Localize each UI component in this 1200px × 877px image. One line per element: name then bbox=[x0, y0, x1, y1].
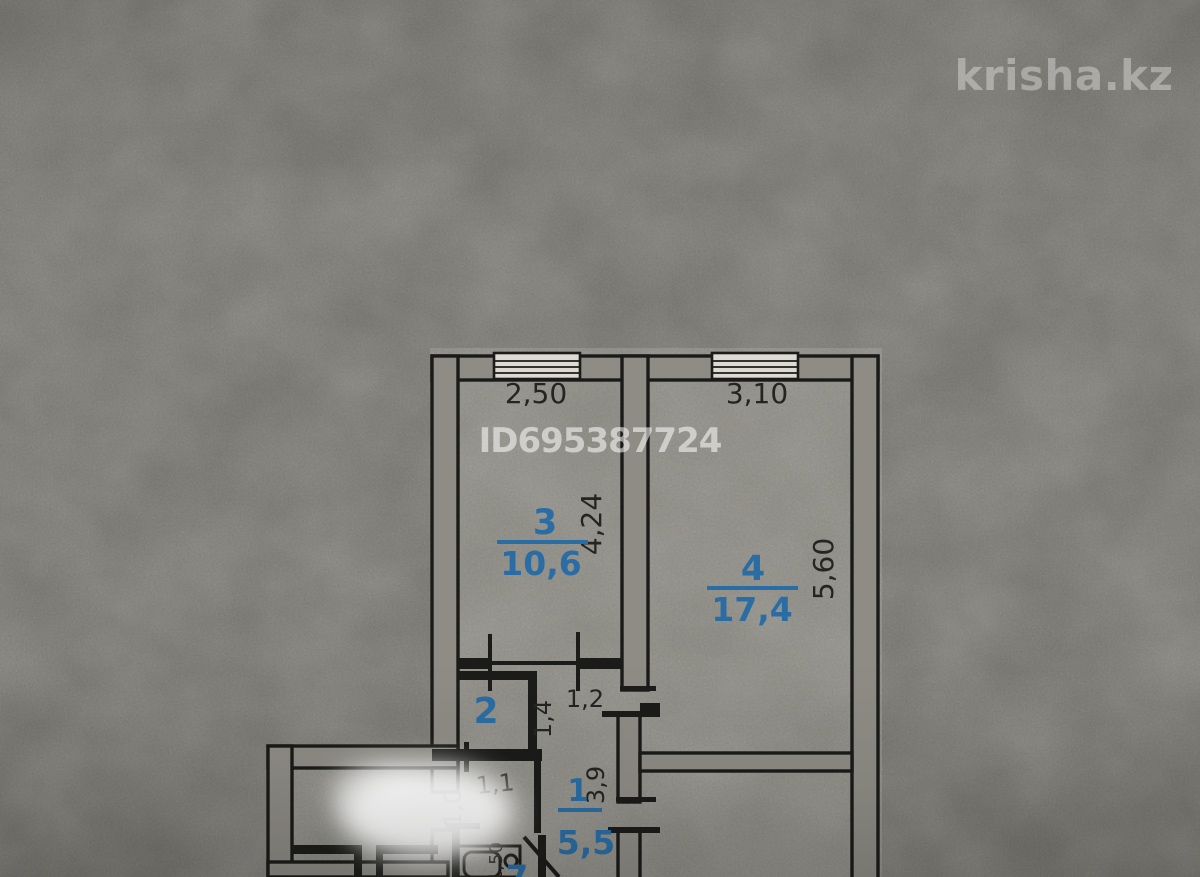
room3-number: 3 bbox=[533, 503, 557, 543]
door-jamb-tick bbox=[616, 797, 656, 802]
window-icon bbox=[494, 353, 580, 379]
dim-corridor-width: 1,4 bbox=[529, 700, 557, 738]
dim-door-width: 1,2 bbox=[566, 685, 604, 713]
dim-bath-width: 1,50 bbox=[486, 842, 507, 877]
wall-segment bbox=[852, 356, 878, 877]
door-jamb-tick bbox=[464, 742, 469, 772]
floor-plan-photo: 2,50 3,10 4,24 5,60 1,4 1,2 3,9 1,1 1,0 … bbox=[0, 0, 1200, 877]
wall-segment bbox=[578, 658, 622, 669]
wall-segment bbox=[432, 749, 542, 761]
wall-segment bbox=[376, 854, 383, 877]
dim-room3-width: 2,50 bbox=[505, 377, 567, 410]
room1-area: 5,5 bbox=[557, 823, 615, 862]
room2-number: 2 bbox=[473, 691, 498, 732]
wall-segment bbox=[622, 356, 648, 690]
wall-stub bbox=[640, 703, 660, 717]
room4-area: 17,4 bbox=[711, 590, 792, 629]
room1-number: 1 bbox=[567, 773, 589, 809]
room4-number: 4 bbox=[741, 549, 765, 589]
window-icon bbox=[712, 353, 798, 379]
glare-spot bbox=[330, 764, 418, 828]
room3-area: 10,6 bbox=[500, 544, 581, 583]
wall-segment bbox=[268, 746, 292, 877]
wall-segment bbox=[458, 671, 536, 680]
krisha-watermark: krisha.kz bbox=[954, 51, 1173, 100]
wall-segment bbox=[292, 845, 362, 854]
door-jamb-tick bbox=[620, 686, 656, 691]
door-sill bbox=[491, 661, 579, 665]
listing-id-watermark: ID695387724 bbox=[479, 421, 722, 461]
wall-segment bbox=[458, 658, 492, 669]
wall-segment bbox=[618, 714, 640, 802]
dim-room4-depth: 5,60 bbox=[807, 538, 840, 600]
wall-segment bbox=[618, 830, 640, 877]
wall-segment bbox=[432, 356, 458, 768]
floor-plan-canvas: 2,50 3,10 4,24 5,60 1,4 1,2 3,9 1,1 1,0 … bbox=[0, 0, 1200, 877]
door-jamb-tick bbox=[488, 634, 492, 691]
wall-segment bbox=[534, 761, 541, 833]
dim-room4-width: 3,10 bbox=[726, 377, 788, 410]
door-jamb-tick bbox=[576, 632, 580, 691]
room7-number: 7 bbox=[506, 858, 528, 877]
door-jamb-tick bbox=[608, 827, 660, 833]
wall-segment bbox=[640, 753, 852, 771]
wall-segment bbox=[354, 854, 362, 877]
